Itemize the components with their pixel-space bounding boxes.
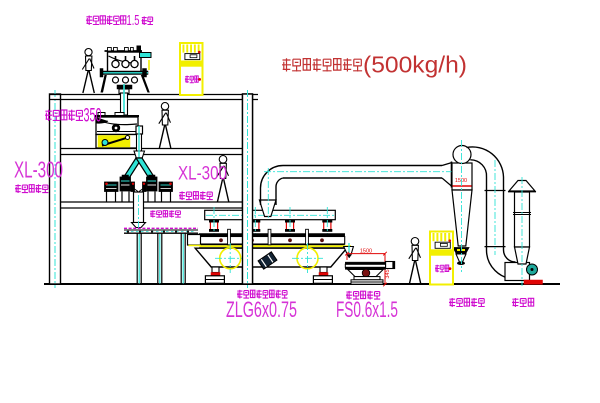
svg-text:1.5: 1.5 [127,12,140,29]
svg-text:FS0.6x1.5: FS0.6x1.5 [336,297,398,322]
svg-text:1500: 1500 [360,249,372,255]
svg-text:350: 350 [84,106,102,127]
svg-text:1500: 1500 [455,178,467,184]
svg-text:XL-300: XL-300 [14,157,63,183]
svg-text:ZLG6x0.75: ZLG6x0.75 [226,297,297,322]
svg-text:XL-300: XL-300 [178,164,227,185]
svg-text:(500kg/h): (500kg/h) [363,52,467,78]
svg-text:345: 345 [385,269,391,278]
